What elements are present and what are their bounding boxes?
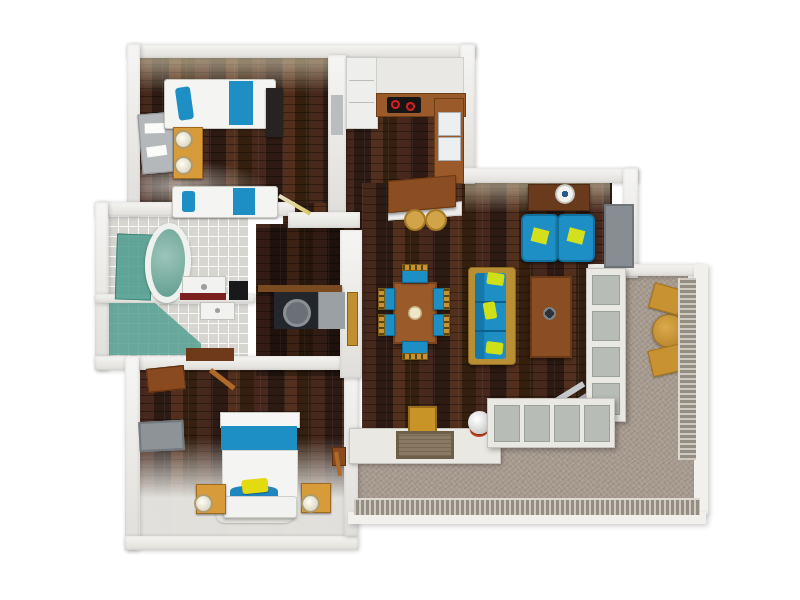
chair-back (402, 264, 428, 271)
footboard-bench (223, 496, 297, 518)
pillow (175, 86, 194, 121)
faucet-dot (201, 284, 207, 290)
dining-chair (378, 288, 395, 310)
dining-chair (433, 288, 450, 310)
wall-clock (555, 184, 575, 204)
burner (406, 102, 415, 111)
double-bed (220, 412, 298, 518)
sofa (468, 267, 516, 365)
table-lamp (194, 494, 213, 513)
outer-rim-right (694, 264, 708, 514)
chair-back (378, 288, 385, 310)
bar-stool (425, 209, 447, 231)
pillow (182, 191, 195, 212)
chair-back (443, 288, 450, 310)
cushion-seam (475, 330, 506, 332)
yellow-cushion (567, 227, 586, 244)
plate (408, 306, 422, 320)
chair-back (402, 353, 428, 360)
tv-panel (604, 204, 634, 268)
dining-chair (433, 314, 450, 336)
decor-bowl (543, 307, 556, 320)
glass-pane (592, 347, 620, 377)
tv-panel-master (138, 420, 185, 452)
blanket-stripe (233, 188, 255, 215)
glass-pane (592, 275, 620, 305)
doormat (396, 431, 454, 459)
dining-chair (402, 341, 428, 360)
glass-pane (524, 405, 550, 442)
cooktop (387, 97, 421, 113)
chair-back (378, 314, 385, 336)
wall-master-left (125, 356, 139, 550)
armchair (557, 214, 595, 262)
wall-cabinet (146, 365, 186, 393)
dining-chair (378, 314, 395, 336)
shelf (258, 285, 342, 292)
glass-pane (494, 405, 520, 442)
table-lamp (174, 156, 193, 175)
cabinet (318, 292, 345, 329)
yellow-cushion (531, 227, 550, 244)
wall-master-bottom (125, 536, 358, 550)
wardrobe (266, 88, 283, 137)
washer-door (283, 299, 311, 327)
dining-table (393, 282, 437, 344)
wall-bedroom-kitchen (328, 55, 346, 215)
bar-stool (404, 209, 426, 231)
island-counter (388, 175, 456, 213)
wall-outer-top (127, 44, 475, 58)
twin-bed-2 (172, 186, 278, 218)
sink (200, 302, 235, 320)
paper (145, 123, 165, 133)
dark-cabinet (229, 281, 248, 300)
counter-sink (434, 98, 464, 184)
glass-pane (554, 405, 580, 442)
yellow-pillow (485, 341, 503, 355)
window-wall-terrace (487, 398, 615, 448)
cabinet-line (349, 80, 374, 81)
faucet-dot (215, 308, 220, 313)
yellow-pillow (486, 272, 505, 286)
wall-tvroom-top (460, 168, 638, 183)
blanket-stripe (221, 426, 297, 450)
wood-threshold (186, 348, 234, 361)
yellow-pillow (241, 478, 268, 495)
wall-outer-left-bathroom (95, 202, 108, 370)
terrace-railing (354, 498, 700, 515)
blanket-stripe (229, 81, 253, 125)
washing-machine (274, 292, 318, 329)
wall-closet-top (288, 212, 360, 228)
coffee-table (530, 276, 572, 358)
balcony-railing (678, 278, 696, 460)
table-lamp (174, 130, 193, 149)
burner (391, 100, 400, 109)
door-handle-inset (347, 292, 358, 346)
upper-cabinets (376, 57, 464, 97)
vanity-counter (180, 293, 226, 300)
tall-cabinet (346, 57, 378, 129)
sink-basin (438, 137, 461, 161)
dining-chair (402, 264, 428, 283)
table-lamp (301, 494, 320, 513)
armchair (521, 214, 559, 262)
floor-plan-render (0, 0, 800, 600)
glass-pane (592, 311, 620, 341)
wall-niche (331, 95, 343, 135)
chair-back (443, 314, 450, 336)
paper (146, 145, 167, 158)
twin-bed-1 (164, 79, 276, 129)
sink-basin (438, 112, 461, 136)
glass-pane (584, 405, 610, 442)
cabinet-line (349, 102, 374, 103)
